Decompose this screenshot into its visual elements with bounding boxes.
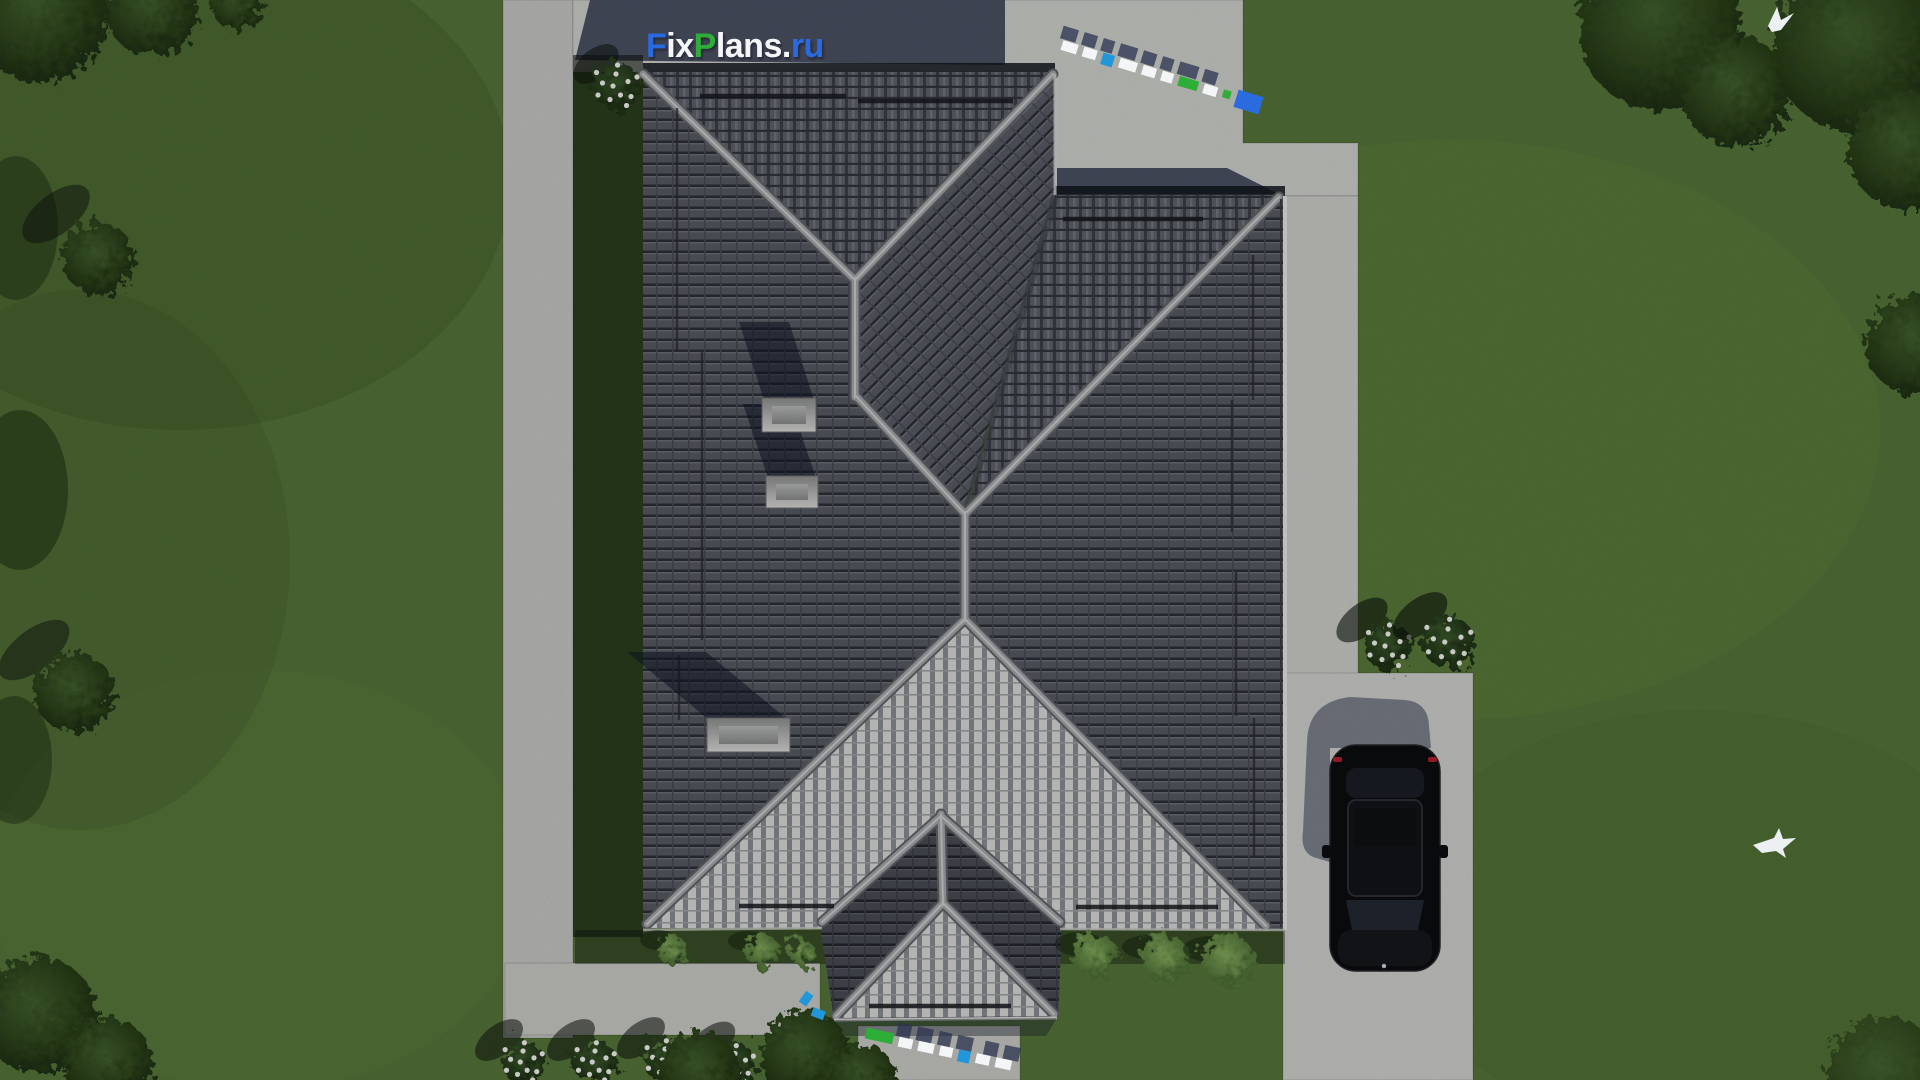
aerial-render-canvas: FixPlans.ru xyxy=(0,0,1920,1080)
brand-part: P xyxy=(694,27,716,65)
brand-logo: FixPlans.ru xyxy=(646,27,824,65)
brand-part: ix xyxy=(666,27,694,65)
brand-part: lans. xyxy=(716,27,791,65)
brand-part: ru xyxy=(791,27,824,65)
brand-part: F xyxy=(646,27,666,65)
scene-svg: FixPlans.ru xyxy=(0,0,1920,1080)
grain-overlay xyxy=(0,0,1920,1080)
